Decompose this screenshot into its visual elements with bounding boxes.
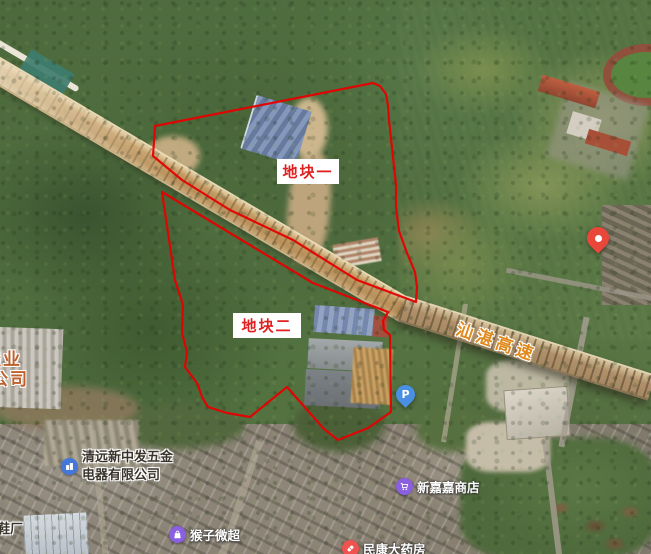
lumber-yard bbox=[351, 347, 394, 405]
edge-company-line1: 佳业 bbox=[0, 350, 29, 370]
edge-company-line2: 公司 bbox=[0, 370, 29, 390]
plot2-label-text: 地块二 bbox=[241, 315, 292, 336]
poi-shoe-factory[interactable]: 鞋厂 bbox=[0, 521, 23, 539]
poi-hardware-company[interactable]: 清远新中发五金 电器有限公司 bbox=[61, 449, 173, 485]
poi-minkang-label: 民康大药房 bbox=[363, 539, 426, 554]
poi-xinjiajia-label: 新嘉嘉商店 bbox=[417, 477, 480, 496]
poi-hardware-line2: 电器有限公司 bbox=[82, 467, 173, 485]
poi-monkey-label: 猴子微超 bbox=[190, 525, 240, 544]
shopping-cart-icon bbox=[396, 478, 413, 495]
blue-roof-building bbox=[313, 305, 375, 336]
plot1-label: 地块一 bbox=[277, 159, 339, 184]
parking-pin-letter: P bbox=[396, 388, 415, 401]
plot2-label: 地块二 bbox=[233, 313, 301, 338]
parking-pin[interactable]: P bbox=[396, 385, 416, 413]
poi-monkey-minimart[interactable]: 猴子微超 bbox=[169, 525, 240, 544]
destination-pin-dot bbox=[595, 235, 602, 242]
edge-company-label: 佳业 公司 bbox=[0, 350, 29, 390]
company-icon bbox=[61, 458, 78, 475]
capsule-icon bbox=[342, 540, 359, 554]
shopping-bag-icon bbox=[169, 526, 186, 543]
factory-building bbox=[23, 512, 89, 554]
plot1-label-text: 地块一 bbox=[282, 161, 333, 182]
poi-minkang-pharmacy[interactable]: 民康大药房 bbox=[342, 539, 426, 554]
destination-pin[interactable] bbox=[587, 227, 610, 259]
poi-shoe-label: 鞋厂 bbox=[0, 521, 23, 539]
satellite-map[interactable]: 地块一 地块二 汕湛高速 佳业 公司 清远新中发五金 电器有限公司 鞋厂 猴子微… bbox=[0, 0, 651, 554]
poi-xinjiajia-store[interactable]: 新嘉嘉商店 bbox=[396, 477, 480, 496]
poi-hardware-line1: 清远新中发五金 bbox=[82, 449, 173, 467]
red-roof-building bbox=[372, 316, 388, 338]
